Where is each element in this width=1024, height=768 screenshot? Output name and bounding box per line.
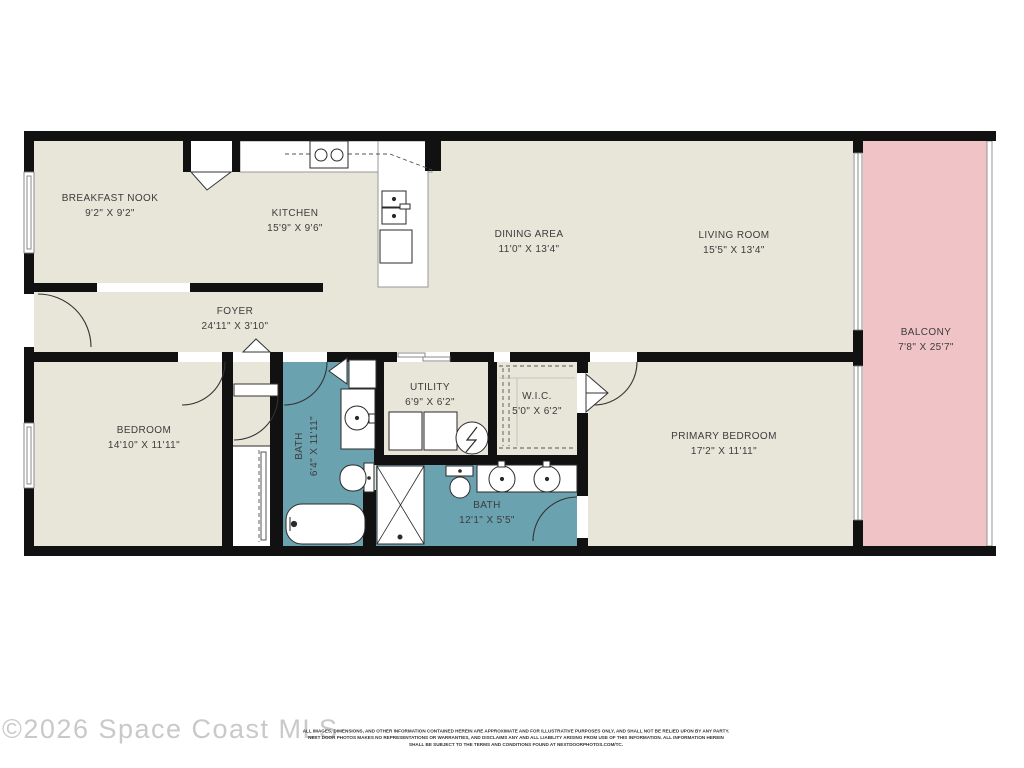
room-name: BALCONY [898,325,954,340]
room-name: UTILITY [405,380,455,395]
room-dims: 15'5" X 13'4" [698,243,769,258]
room-dims: 17'2" X 11'11" [671,444,777,459]
open-door-leaf [349,360,376,388]
pantry-closet [191,141,232,172]
room-name: PRIMARY BEDROOM [671,429,777,444]
room-dims: 6'9" X 6'2" [405,395,455,410]
room-dims: 14'10" X 11'11" [108,438,180,453]
hall-bath-sink-icon [341,389,375,449]
room-name: FOYER [202,304,269,319]
room-dims: 15'9" X 9'6" [267,221,323,236]
bathtub-icon [286,504,365,544]
label-bedroom: BEDROOM 14'10" X 11'11" [108,423,180,453]
closet-slider-panel [261,452,266,540]
label-hall-bath: BATH 6'4" X 11'11" [292,416,322,476]
label-primary-bath: BATH 12'1" X 5'5" [459,498,515,528]
room-name: W.I.C. [512,389,562,404]
disclaimer-text: ALL IMAGES, DIMENSIONS, AND OTHER INFORM… [286,728,746,748]
room-name: BATH [459,498,515,513]
water-heater-icon [456,422,488,454]
label-living-room: LIVING ROOM 15'5" X 13'4" [698,228,769,258]
label-utility: UTILITY 6'9" X 6'2" [405,380,455,410]
nook-window [24,172,34,253]
living-slider-window [854,153,862,330]
double-sink-icon [477,461,577,492]
disclaimer-line: SHALL BE SUBJECT TO THE TERMS AND CONDIT… [286,741,746,748]
room-dims: 11'0" X 13'4" [495,242,564,257]
room-name: BEDROOM [108,423,180,438]
label-dining-area: DINING AREA 11'0" X 13'4" [495,227,564,257]
disclaimer-line: NEXT DOOR PHOTOS MAKES NO REPRESENTATION… [286,735,746,742]
kitchen-sink-icon [382,191,410,224]
label-balcony: BALCONY 7'8" X 25'7" [898,325,954,355]
room-dims: 9'2" X 9'2" [62,206,159,221]
room-name: LIVING ROOM [698,228,769,243]
room-dims: 7'8" X 25'7" [898,340,954,355]
room-dims: 5'0" X 6'2" [512,404,562,419]
stove-icon [310,141,348,168]
room-dims: 24'11" X 3'10" [202,319,269,334]
label-breakfast-nook: BREAKFAST NOOK 9'2" X 9'2" [62,191,159,221]
dryer-icon [424,412,457,450]
floorplan-image: BREAKFAST NOOK 9'2" X 9'2" KITCHEN 15'9"… [0,0,1024,768]
room-name: DINING AREA [495,227,564,242]
disclaimer-line: ALL IMAGES, DIMENSIONS, AND OTHER INFORM… [286,728,746,735]
hall-bath-toilet-icon [340,463,374,492]
room-name: BATH [292,416,307,476]
washer-icon [389,412,422,450]
hall-door-leaf [234,384,278,396]
primary-slider-window [854,366,862,520]
floorplan-drawing [0,0,1024,768]
label-kitchen: KITCHEN 15'9" X 9'6" [267,206,323,236]
shower-icon [377,466,424,544]
fridge-icon [380,230,412,263]
label-primary-bedroom: PRIMARY BEDROOM 17'2" X 11'11" [671,429,777,459]
label-wic: W.I.C. 5'0" X 6'2" [512,389,562,419]
room-dims: 12'1" X 5'5" [459,513,515,528]
room-dims: 6'4" X 11'11" [307,416,322,476]
balcony-rail [987,141,992,546]
label-foyer: FOYER 24'11" X 3'10" [202,304,269,334]
room-name: KITCHEN [267,206,323,221]
bedroom-window [24,423,34,488]
room-name: BREAKFAST NOOK [62,191,159,206]
